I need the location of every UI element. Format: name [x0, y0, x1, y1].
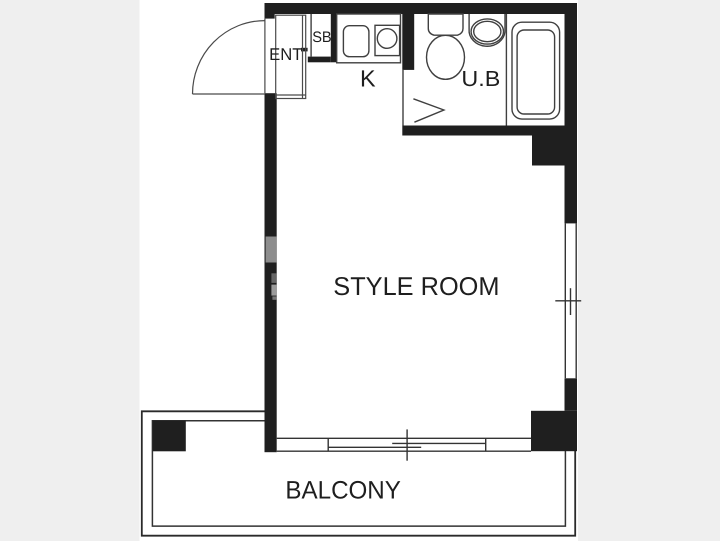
svg-text:SB: SB: [312, 29, 332, 46]
svg-text:K: K: [360, 66, 376, 92]
svg-text:STYLE ROOM: STYLE ROOM: [333, 273, 499, 301]
svg-text:ENT: ENT: [269, 45, 302, 64]
svg-text:BALCONY: BALCONY: [285, 476, 401, 504]
svg-text:U.B: U.B: [461, 66, 500, 91]
